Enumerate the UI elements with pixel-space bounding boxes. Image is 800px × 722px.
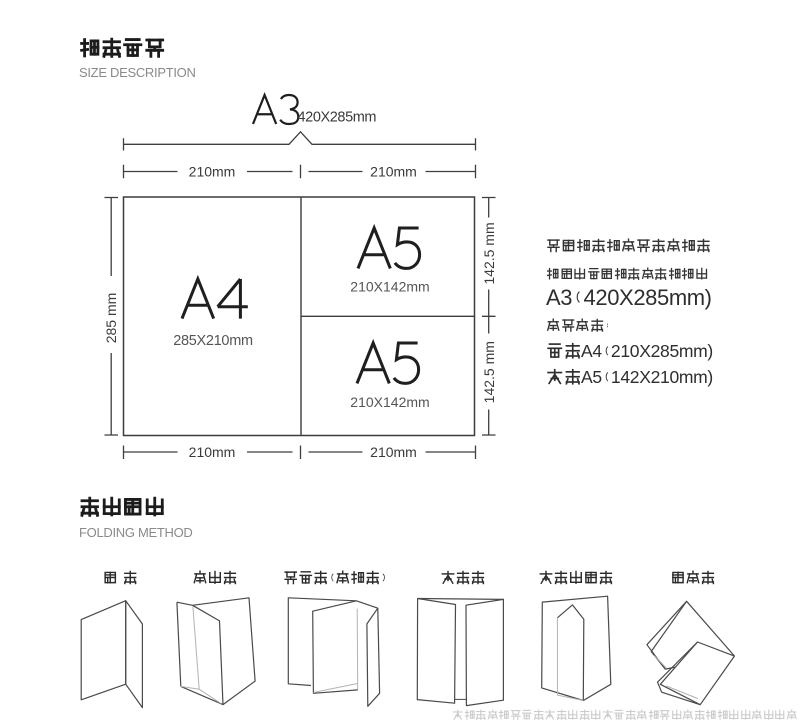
svg-text:210X142mm: 210X142mm xyxy=(350,394,429,410)
svg-text:142.5 mm: 142.5 mm xyxy=(481,222,497,284)
svg-text:142.5 mm: 142.5 mm xyxy=(481,341,497,403)
svg-text:210mm: 210mm xyxy=(370,444,417,460)
svg-text:210X142mm: 210X142mm xyxy=(350,279,429,295)
svg-text:210mm: 210mm xyxy=(189,444,236,460)
svg-text:210mm: 210mm xyxy=(189,164,236,180)
svg-text:285 mm: 285 mm xyxy=(103,293,119,344)
svg-text:285X210mm: 285X210mm xyxy=(173,333,253,349)
svg-text:210mm: 210mm xyxy=(370,164,417,180)
svg-text:420X285mm: 420X285mm xyxy=(298,110,377,126)
